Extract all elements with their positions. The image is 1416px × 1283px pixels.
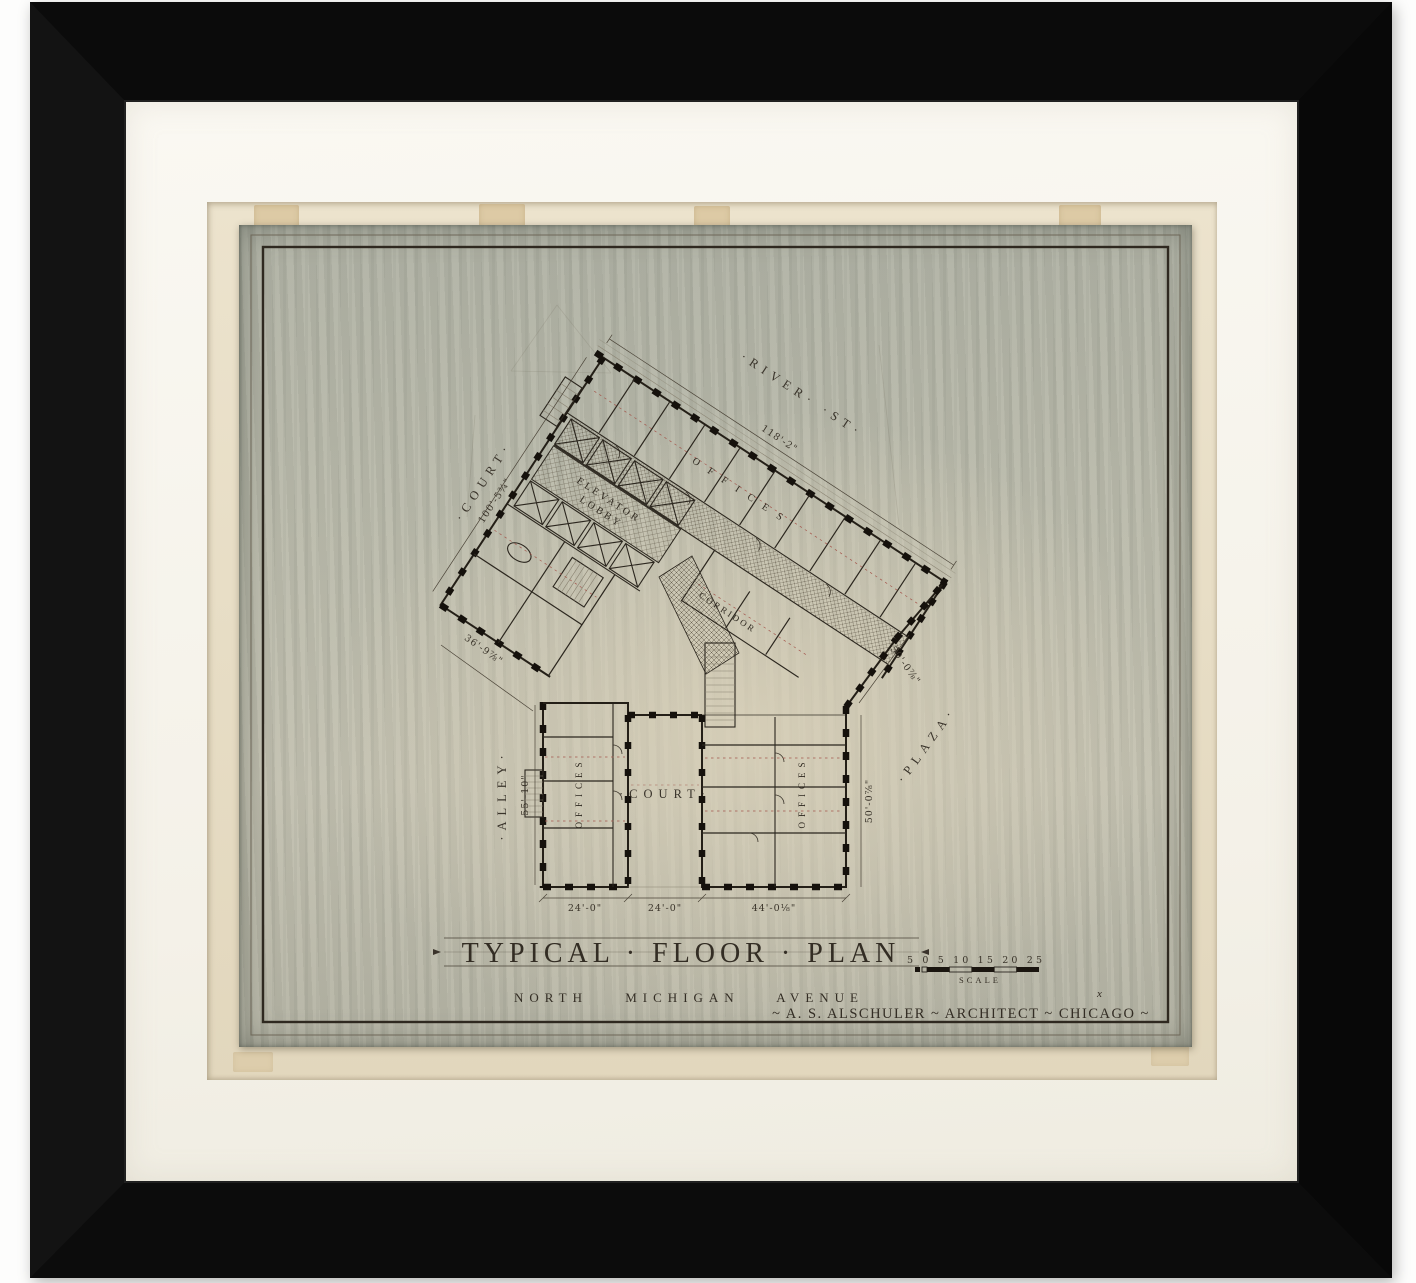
river-st-label: ·RIVER· ·ST· [738, 350, 866, 441]
framed-drawing-photo: ·RIVER· ·ST· 118'-2" [0, 0, 1416, 1283]
mat-window-backing: ·RIVER· ·ST· 118'-2" [207, 202, 1217, 1080]
title-block: TYPICAL · FLOOR · PLAN NORTH MICHIGAN AV… [433, 938, 1150, 1022]
center-court: ·COURT· [619, 715, 711, 887]
floor-plan-drawing: ·RIVER· ·ST· 118'-2" [239, 225, 1192, 1047]
dim-24-mid: 24'-0" [648, 903, 682, 914]
scale-label: SCALE [959, 975, 1001, 985]
scale-bar: 5 0 5 10 15 20 25 SCALE [907, 955, 1043, 985]
right-wing: OFFICES [702, 585, 942, 888]
drawing-subtitle: NORTH MICHIGAN AVENUE [514, 990, 864, 1005]
drawing-sheet: ·RIVER· ·ST· 118'-2" [239, 225, 1192, 1047]
bottom-dimensions: 24'-0" 24'-0" 44'-0⅛" [539, 894, 850, 914]
picture-frame: ·RIVER· ·ST· 118'-2" [30, 2, 1392, 1278]
tape-patch [233, 1052, 273, 1072]
plaza-label: ·PLAZA· [894, 704, 959, 786]
architect-credit: ~ A. S. ALSCHULER ~ ARCHITECT ~ CHICAGO … [772, 1006, 1150, 1022]
dim-44: 44'-0⅛" [752, 903, 797, 914]
court-lower-label: ·COURT· [619, 787, 711, 801]
tape-patch [1151, 1044, 1189, 1066]
drawing-title: TYPICAL · FLOOR · PLAN [462, 938, 901, 969]
mat-board: ·RIVER· ·ST· 118'-2" [126, 102, 1297, 1181]
title-flourish [433, 949, 441, 955]
pencil-x-mark: x [1096, 988, 1102, 1000]
scale-numbers: 5 0 5 10 15 20 25 [907, 955, 1043, 966]
wing-left-dim: 36'-9⅞" [462, 633, 505, 668]
plaza-diag-dim: 50'-0⅞" [887, 644, 922, 687]
alley-label: ·ALLEY· [495, 749, 509, 840]
offices-left-label: OFFICES [574, 757, 584, 828]
dim-24-left: 24'-0" [568, 903, 602, 914]
alley-dim: 55'-10" [520, 774, 531, 815]
side-dimensions: ·ALLEY· 55'-10" 36'-9⅞" 50'-0⅞" 50'-0⅞" … [441, 633, 959, 887]
lower-left-rooms [441, 504, 640, 692]
plaza-side-dim: 50'-0⅞" [864, 779, 875, 824]
lower-section: CORRIDOR [441, 556, 959, 914]
left-wing: OFFICES [525, 702, 629, 888]
offices-right-label: OFFICES [797, 757, 807, 828]
